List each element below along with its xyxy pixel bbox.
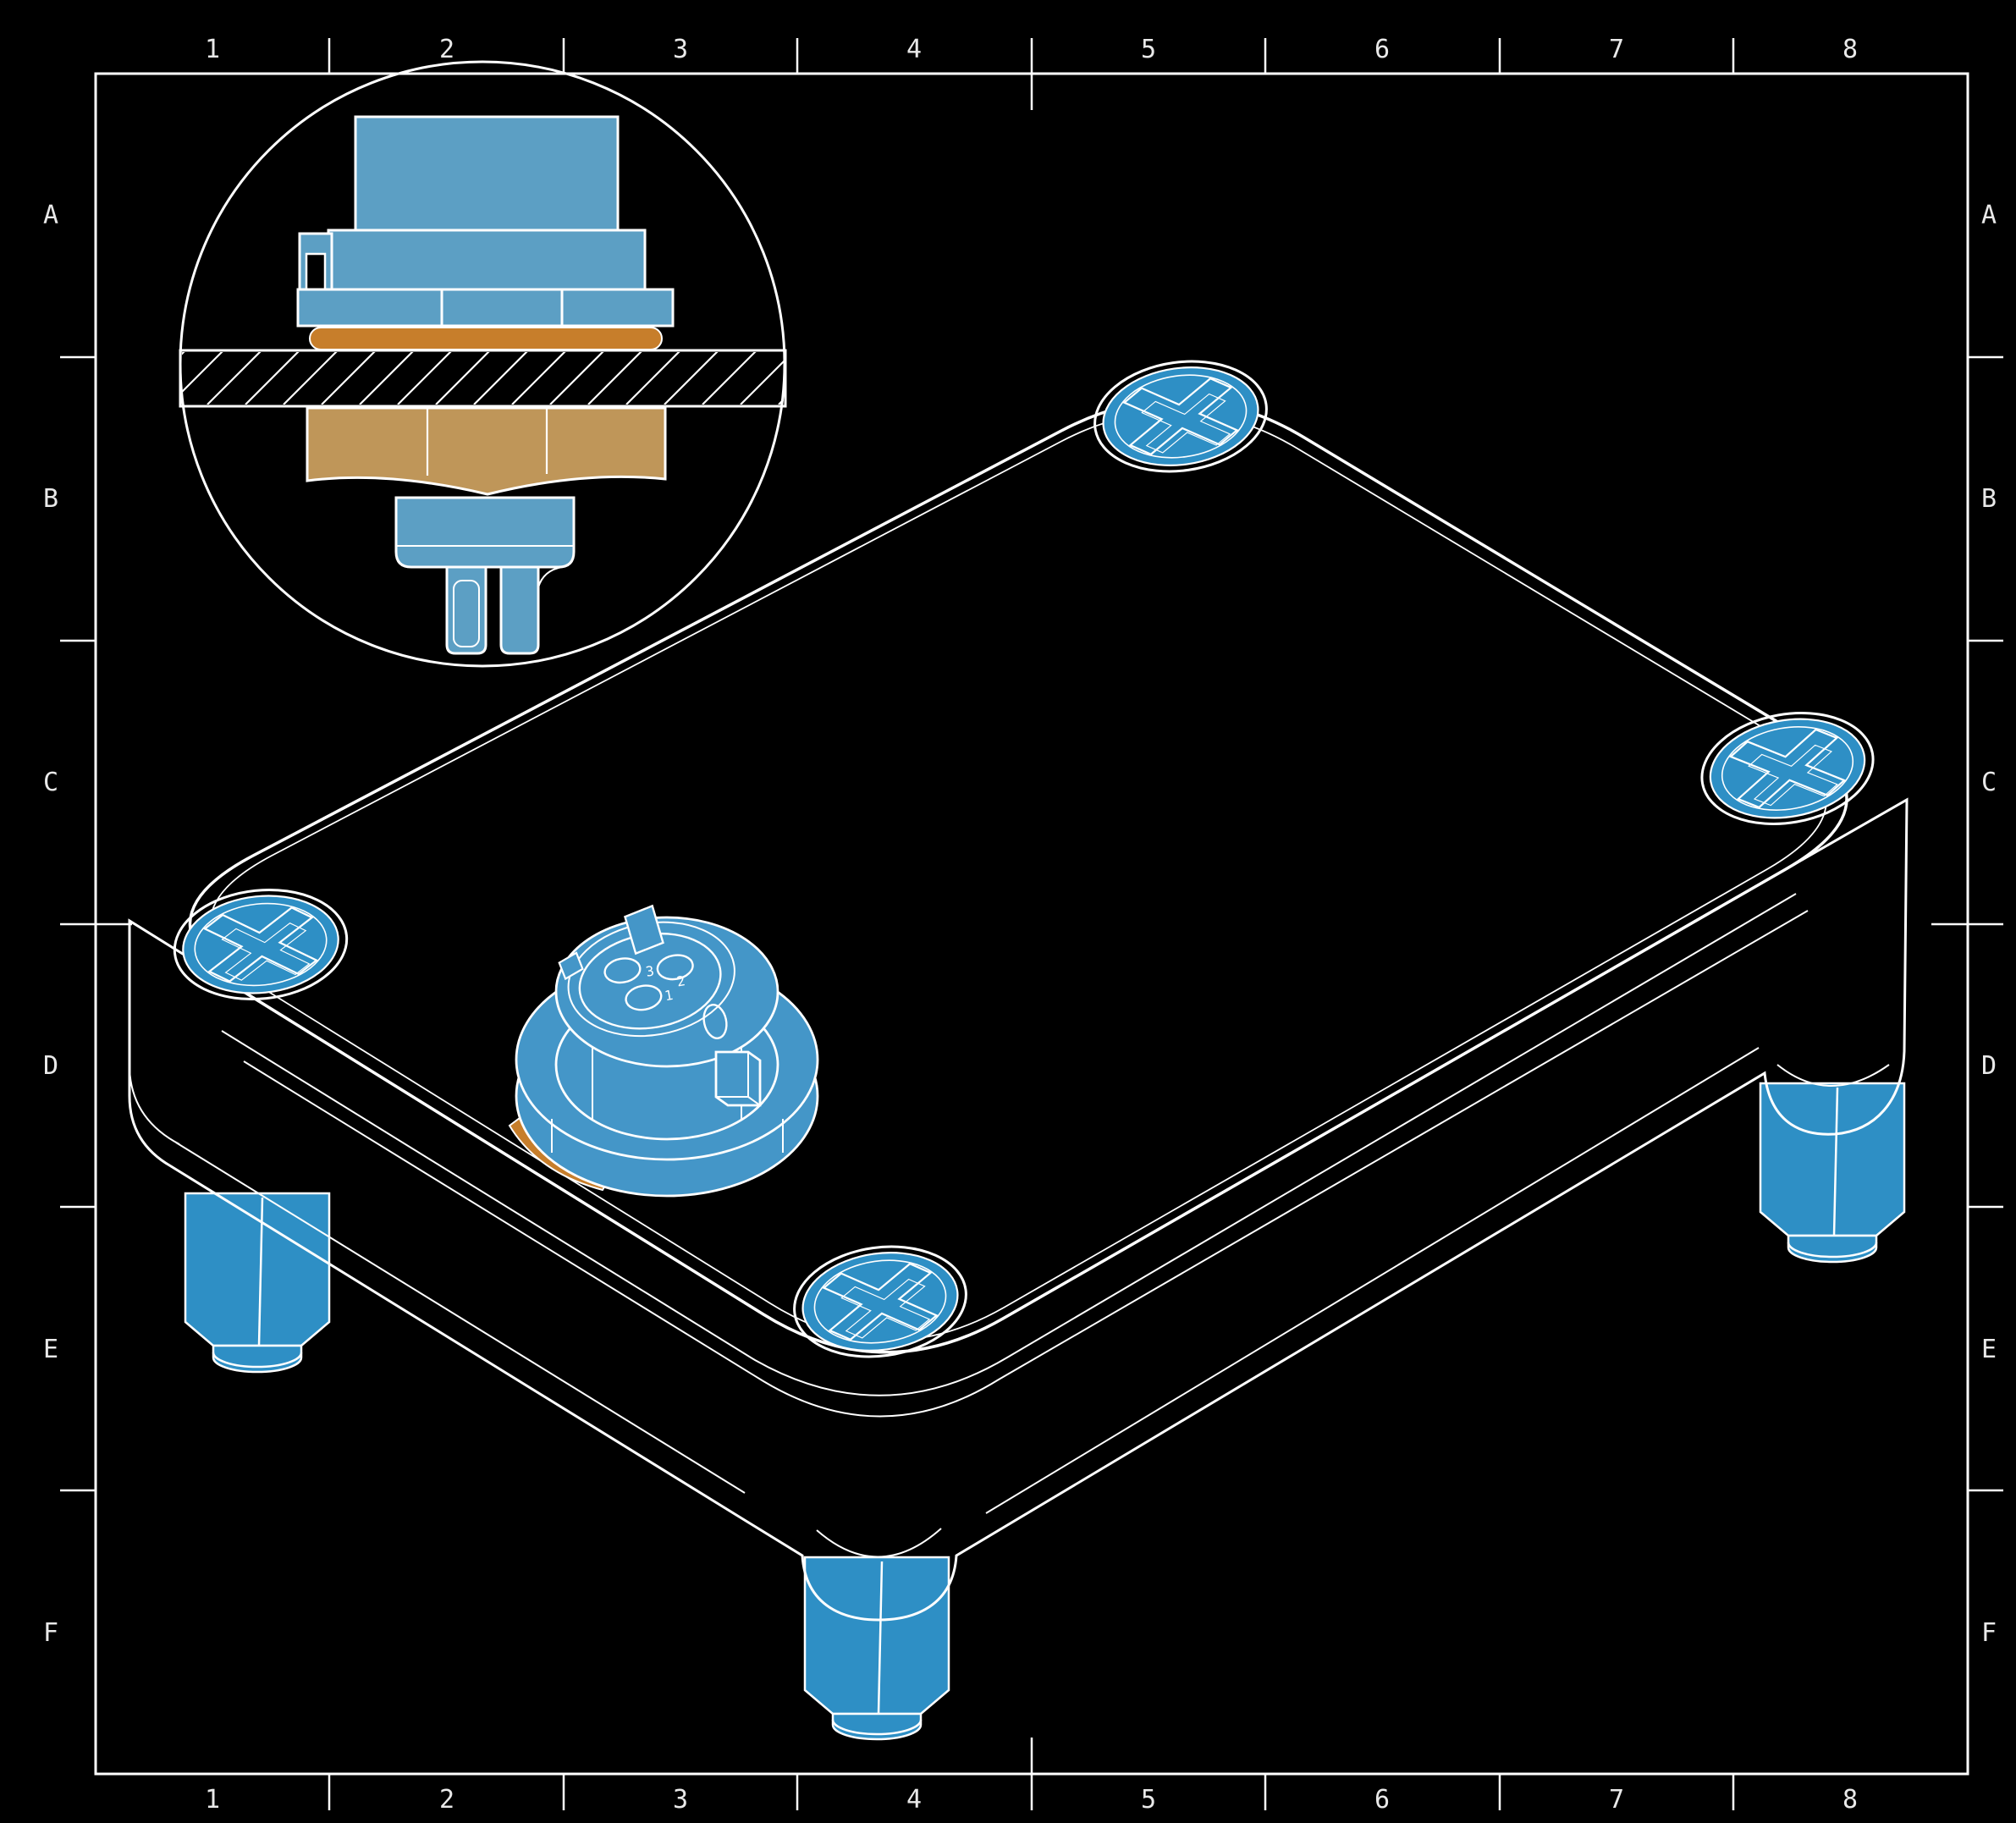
row-label: A: [43, 201, 58, 230]
row-label: C: [1981, 768, 1997, 797]
connector-flange-section-right: [562, 289, 673, 326]
connector-flange-section-left: [298, 289, 442, 326]
column-label: 4: [906, 35, 922, 64]
rear-shell: [396, 498, 574, 567]
row-label: A: [1981, 201, 1997, 230]
row-label: B: [43, 484, 58, 514]
foot-collar: [833, 1714, 921, 1739]
row-label: B: [1981, 484, 1997, 514]
solder-pin-right: [501, 567, 538, 653]
column-label: 6: [1374, 1785, 1390, 1815]
connector-flange-section-mid: [442, 289, 562, 326]
column-label: 8: [1842, 35, 1858, 64]
foot-hex-body: [1760, 1083, 1904, 1236]
row-label: F: [1981, 1618, 1997, 1648]
row-label: E: [1981, 1335, 1997, 1364]
column-label: 4: [906, 1785, 922, 1815]
column-label: 7: [1609, 35, 1624, 64]
foot-collar: [1788, 1236, 1876, 1262]
column-label: 5: [1141, 35, 1156, 64]
column-label: 3: [673, 35, 688, 64]
column-label: 5: [1141, 1785, 1156, 1815]
foot-hex-body: [805, 1557, 949, 1714]
row-label: D: [1981, 1051, 1997, 1081]
latch-slot: [306, 254, 325, 289]
column-label: 6: [1374, 35, 1390, 64]
foot-hex-body: [185, 1193, 329, 1346]
column-label: 8: [1842, 1785, 1858, 1815]
row-label: E: [43, 1335, 58, 1364]
gasket-section: [310, 328, 662, 350]
row-label: C: [43, 768, 58, 797]
column-label: 2: [439, 35, 454, 64]
drawing-canvas: 1 2 3 4 5 6 7 8 1 2 3 4 5 6 7 8 A B C D …: [0, 0, 2016, 1823]
column-label: 7: [1609, 1785, 1624, 1815]
cad-drawing-sheet: 1 2 3 4 5 6 7 8 1 2 3 4 5 6 7 8 A B C D …: [0, 0, 2016, 1823]
connector-shell-section: [355, 117, 618, 230]
row-label: F: [43, 1618, 58, 1648]
column-label: 3: [673, 1785, 688, 1815]
column-label: 1: [205, 35, 220, 64]
foot-collar: [213, 1346, 301, 1372]
column-label: 1: [205, 1785, 220, 1815]
column-label: 2: [439, 1785, 454, 1815]
connector-body-section: [328, 230, 645, 289]
row-label: D: [43, 1051, 58, 1081]
